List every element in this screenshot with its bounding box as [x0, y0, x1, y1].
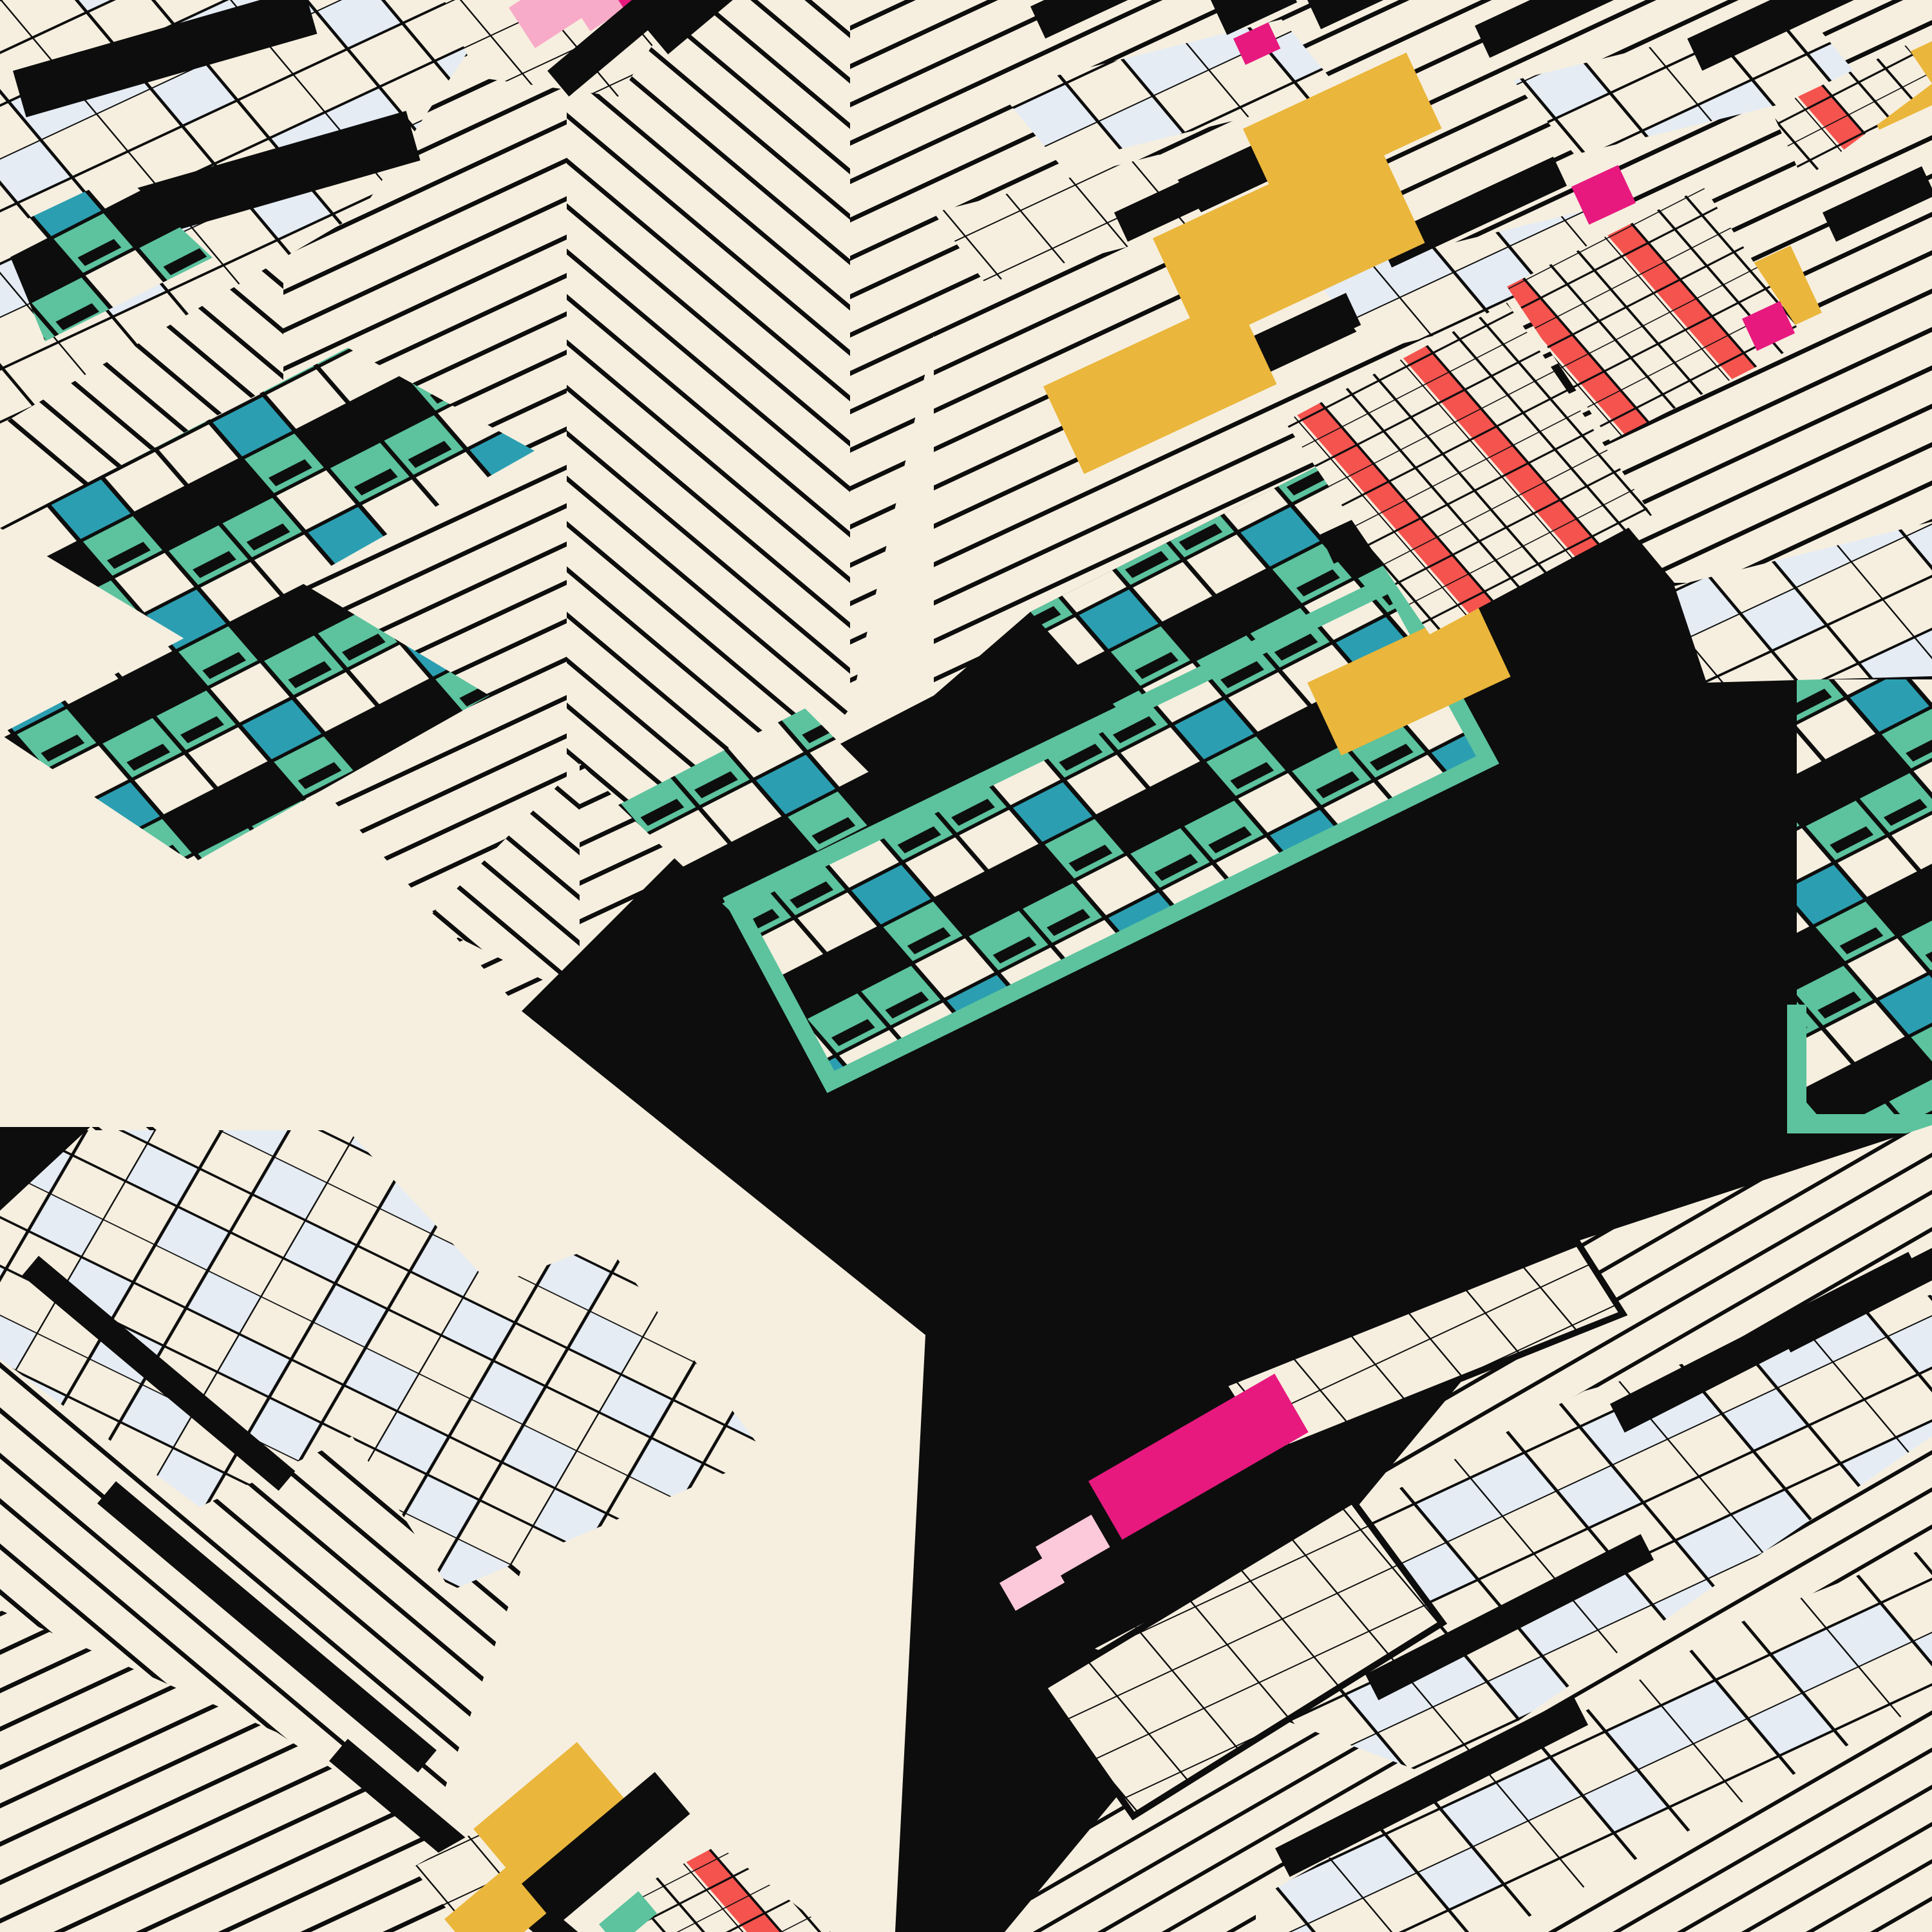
artwork-canvas [0, 0, 1932, 1932]
circuit-board [1797, 679, 1932, 1124]
generative-art-svg [0, 0, 1932, 1932]
right-teal-cluster [1797, 679, 1932, 1124]
